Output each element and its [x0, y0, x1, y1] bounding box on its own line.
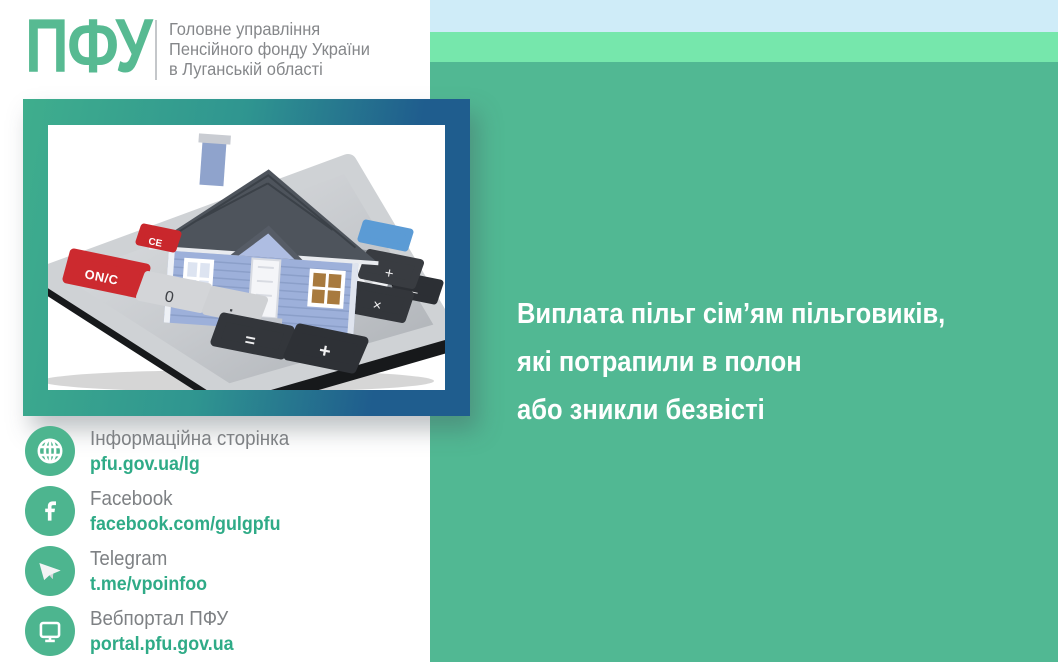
headline-line3: або зникли безвісті: [517, 386, 945, 434]
contact-item-website: Інформаційна сторінка pfu.gov.ua/lg: [25, 426, 302, 477]
headline: Виплата пільг сім’ям пільговиків, які по…: [517, 290, 945, 434]
org-name-line1: Головне управління: [169, 19, 370, 39]
contact-label: Інформаційна сторінка: [90, 426, 289, 451]
contact-link[interactable]: pfu.gov.ua/lg: [90, 453, 289, 477]
house-calculator-svg: 8.8.8 0. − + ×: [48, 125, 445, 390]
contact-label: Facebook: [90, 486, 281, 511]
monitor-icon: [25, 606, 75, 656]
telegram-icon: [25, 546, 75, 596]
contact-item-telegram: Telegram t.me/vpoinfoo: [25, 546, 302, 597]
house-calculator-illustration: 8.8.8 0. − + ×: [48, 125, 445, 390]
contact-label: Вебпортал ПФУ: [90, 606, 234, 631]
globe-icon: [25, 426, 75, 476]
poster: ПФУ Головне управління Пенсійного фонду …: [0, 0, 1058, 662]
photo-frame: 8.8.8 0. − + ×: [23, 99, 470, 416]
top-band-light-green: [430, 32, 1058, 62]
contacts-list: Інформаційна сторінка pfu.gov.ua/lg Face…: [25, 426, 302, 662]
contact-item-webportal: Вебпортал ПФУ portal.pfu.gov.ua: [25, 606, 302, 657]
org-name-line3: в Луганській області: [169, 59, 370, 79]
top-band-light-blue: [430, 0, 1058, 32]
org-name: Головне управління Пенсійного фонду Укра…: [169, 19, 370, 79]
contact-label: Telegram: [90, 546, 207, 571]
contact-link[interactable]: t.me/vpoinfoo: [90, 573, 207, 597]
headline-line1: Виплата пільг сім’ям пільговиків,: [517, 290, 945, 338]
org-name-line2: Пенсійного фонду України: [169, 39, 370, 59]
contact-link[interactable]: facebook.com/gulgpfu: [90, 513, 281, 537]
header-logo-block: ПФУ Головне управління Пенсійного фонду …: [25, 16, 383, 80]
pfu-logo: ПФУ: [25, 16, 145, 78]
headline-line2: які потрапили в полон: [517, 338, 945, 386]
contact-link[interactable]: portal.pfu.gov.ua: [90, 633, 234, 657]
logo-divider: [155, 20, 157, 80]
contact-item-facebook: Facebook facebook.com/gulgpfu: [25, 486, 302, 537]
facebook-icon: [25, 486, 75, 536]
